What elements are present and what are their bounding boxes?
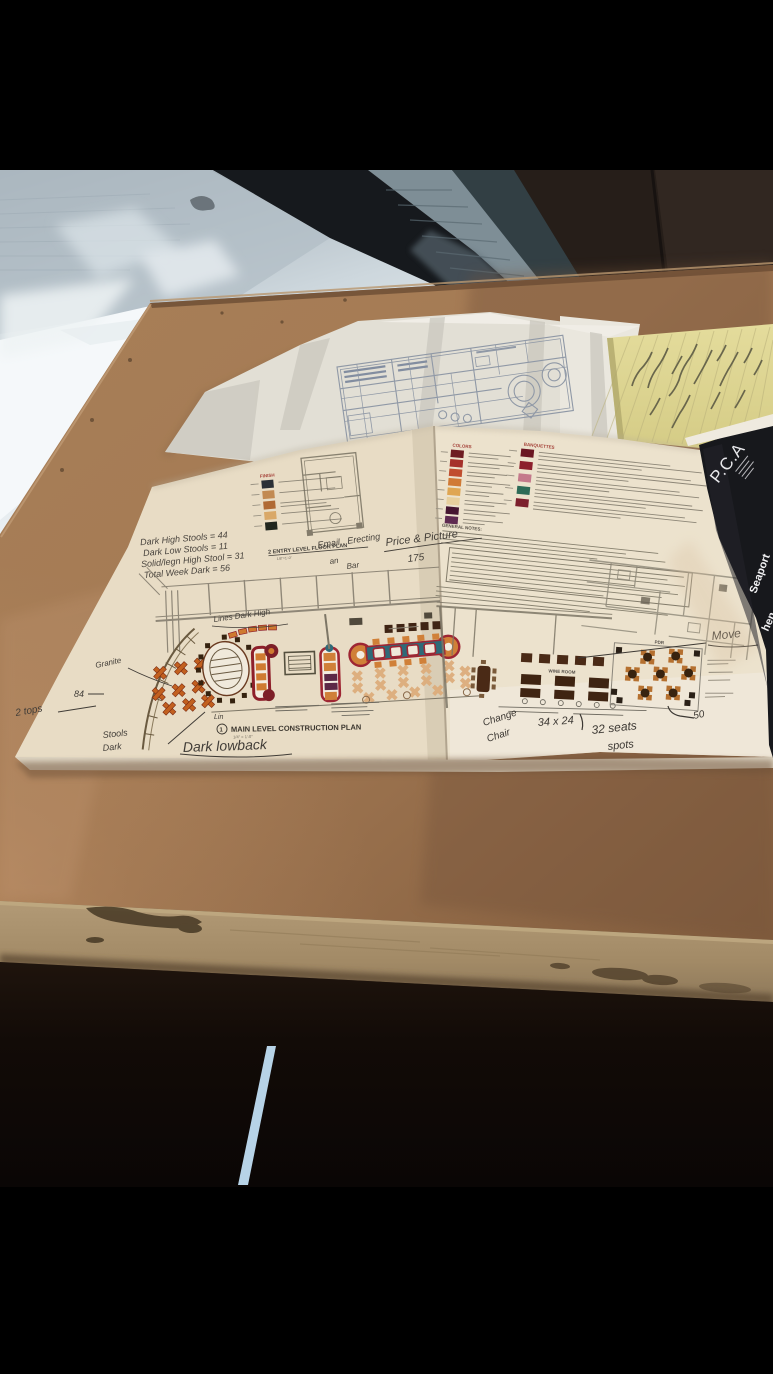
svg-text:PDR: PDR <box>654 640 665 646</box>
svg-text:34 x 24: 34 x 24 <box>537 715 574 729</box>
svg-text:an: an <box>329 556 340 566</box>
svg-text:Bar: Bar <box>346 560 360 571</box>
svg-text:Dark: Dark <box>102 741 122 753</box>
svg-text:84: 84 <box>74 689 84 699</box>
svg-text:Lin: Lin <box>214 714 223 721</box>
svg-text:175: 175 <box>407 552 425 565</box>
svg-text:Dark lowback: Dark lowback <box>183 736 269 755</box>
